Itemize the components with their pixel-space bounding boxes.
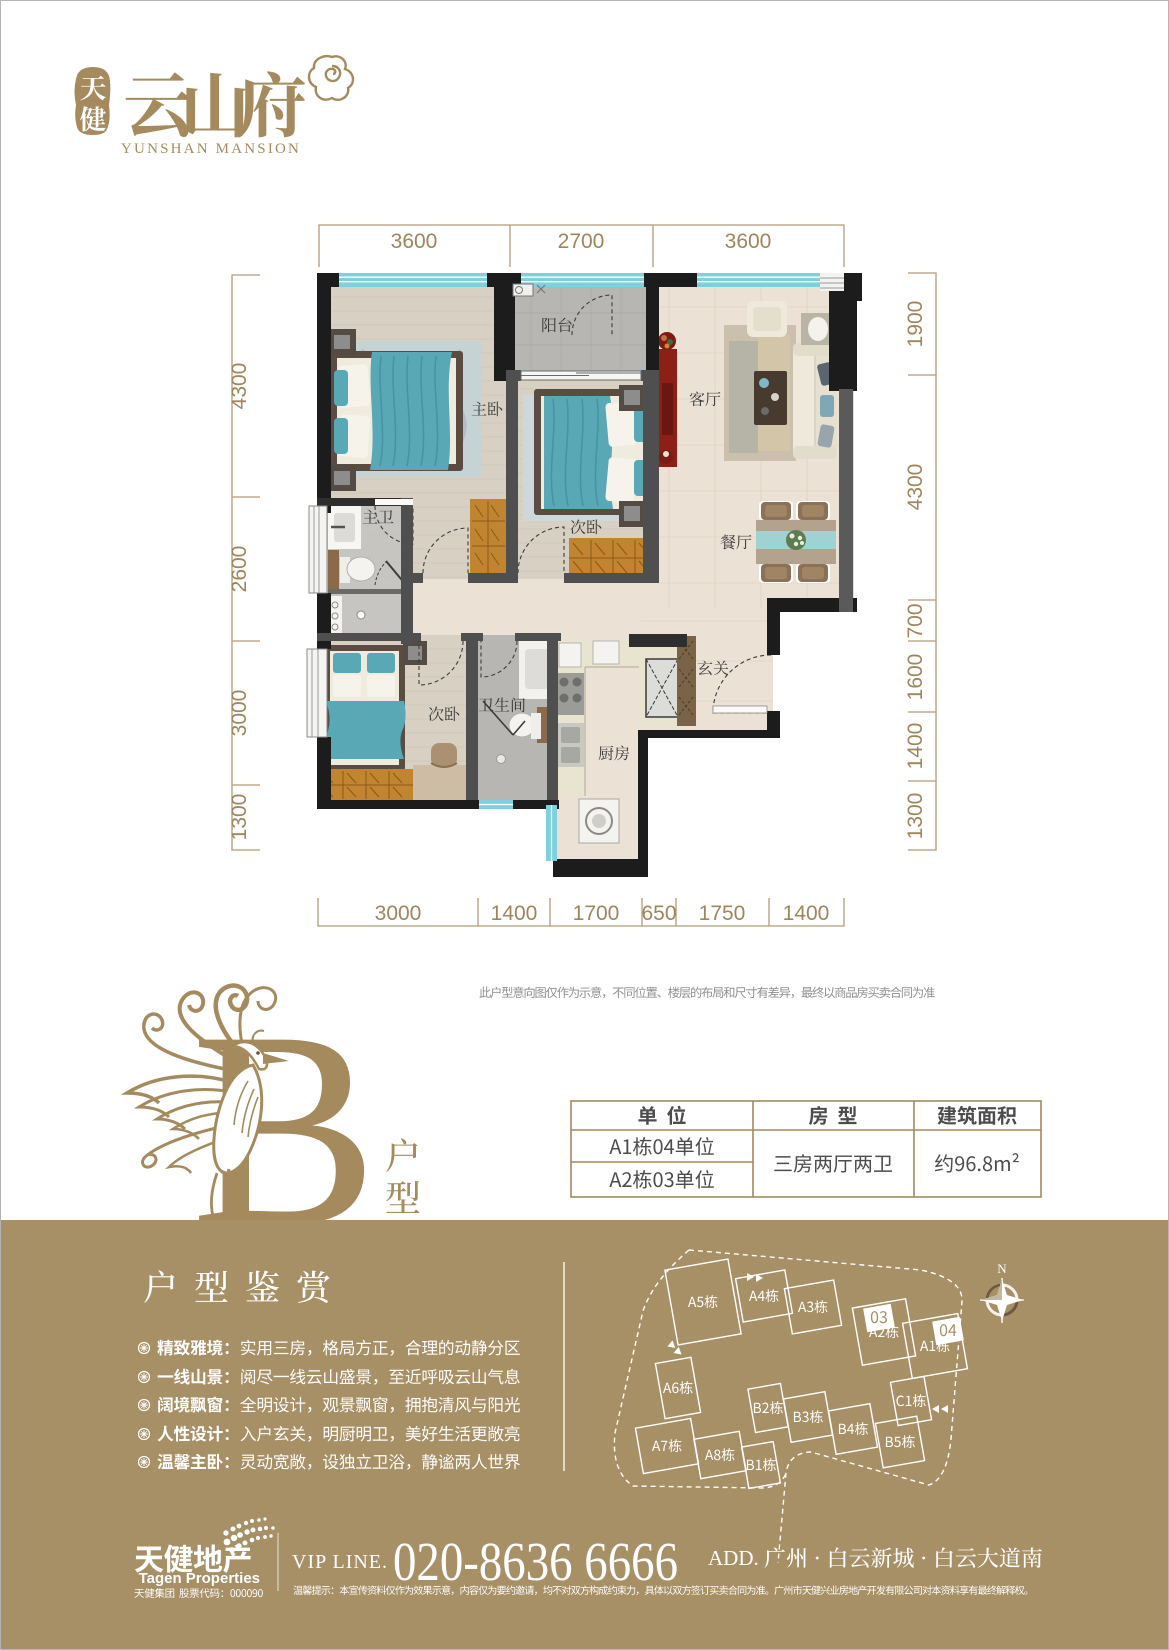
svg-text:4300: 4300	[904, 464, 927, 511]
svg-text:2700: 2700	[558, 230, 605, 253]
svg-text:N: N	[997, 1261, 1007, 1276]
svg-text:1300: 1300	[228, 794, 251, 841]
svg-text:3000: 3000	[228, 690, 251, 737]
svg-text:1300: 1300	[904, 793, 927, 840]
svg-text:ADD.: ADD.	[708, 1546, 759, 1570]
svg-text:1900: 1900	[904, 301, 927, 348]
svg-text:020-8636 6666: 020-8636 6666	[393, 1531, 678, 1592]
svg-text:VIP LINE.: VIP LINE.	[292, 1551, 388, 1573]
svg-text:700: 700	[904, 603, 927, 638]
svg-text:1750: 1750	[699, 902, 746, 925]
svg-text:3000: 3000	[375, 902, 422, 925]
svg-text:Tagen Properties: Tagen Properties	[139, 1570, 260, 1587]
svg-text:YUNSHAN MANSION: YUNSHAN MANSION	[121, 141, 301, 157]
svg-text:4300: 4300	[228, 363, 251, 410]
svg-text:1400: 1400	[783, 902, 830, 925]
svg-text:1600: 1600	[904, 654, 927, 701]
svg-text:3600: 3600	[725, 230, 772, 253]
svg-text:1400: 1400	[904, 723, 927, 770]
svg-text:1700: 1700	[573, 902, 620, 925]
svg-text:650: 650	[641, 902, 676, 925]
svg-text:1400: 1400	[491, 902, 538, 925]
svg-text:3600: 3600	[391, 230, 438, 253]
svg-text:2600: 2600	[228, 546, 251, 593]
